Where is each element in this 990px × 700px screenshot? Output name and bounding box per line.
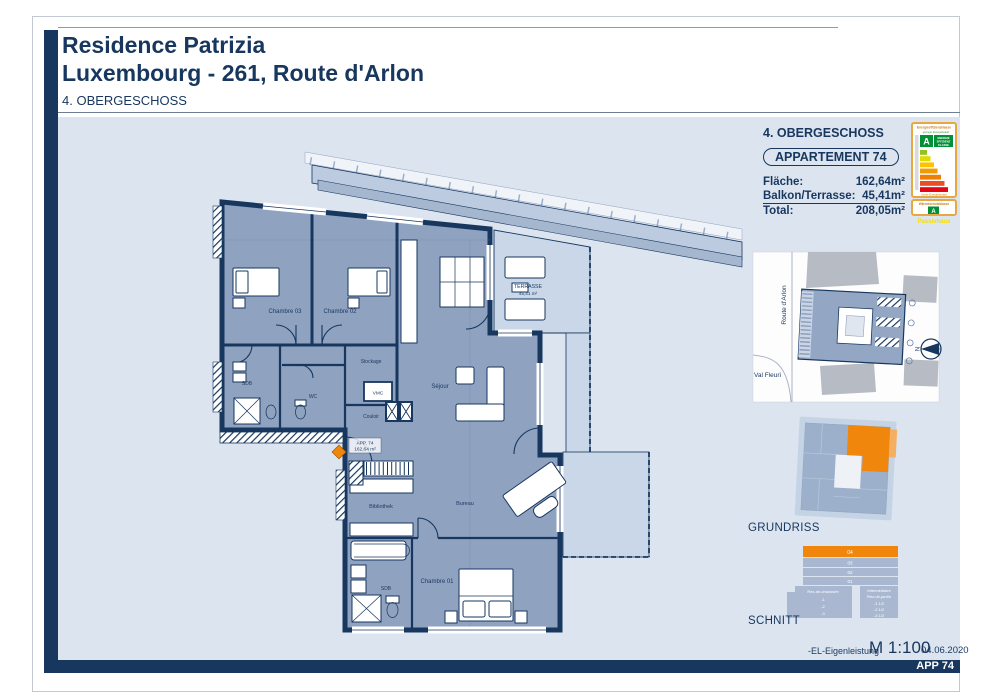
room-label-sdb1: SDB [242,381,253,387]
left-accent-bar [44,30,58,673]
entrance-label-line2: 162,64 m² [354,447,376,453]
apartment-badge: APPARTEMENT 74 [763,148,899,166]
schnitt-left-text: Rez-de-chaussée [807,589,839,594]
area-value: 162,64m² [856,175,905,189]
table-row: Total: 208,05m² [763,204,905,218]
schnitt-floor-text: 04 [847,550,853,556]
footer-date: 04.06.2020 [921,645,969,656]
grundriss-label: GRUNDRISS [748,522,820,534]
area-table: Fläche: 162,64m² Balkon/Terrasse: 45,41m… [763,175,905,218]
page-subtitle: 4. OBERGESCHOSS [62,93,187,108]
room-label-chambre01: Chambre 01 [420,579,454,585]
room-label-wc: WC [309,394,318,400]
energy-caption: ENERGIE [937,136,949,140]
room-label-vmc: VMC [373,391,384,397]
title-line2: Luxembourg - 261, Route d'Arlon [62,59,424,87]
elevator-shafts [386,402,412,421]
schnitt-floor-text: 02 [847,570,853,575]
energy-box1-title: Energieeffizienzklasse [917,126,951,130]
entrance-label-line1: APP. 74 [357,441,374,447]
plan-sheet: Residence Patrizia Luxembourg - 261, Rou… [0,0,990,700]
room-label-bibliothek: Bibliothek [369,504,393,510]
energy-caption: EFFIZIENZ [937,140,951,144]
energy-caption: KLASSE [938,143,949,147]
room-label-chambre03: Chambre 03 [268,309,302,315]
schnitt-label: SCHNITT [748,615,800,627]
table-row: Balkon/Terrasse: 45,41m² [763,189,905,204]
schnitt-right-text: Intermédiaire [867,588,891,593]
area-label: Balkon/Terrasse: [763,189,855,203]
table-row: Fläche: 162,64m² [763,175,905,189]
compass-letter: N [916,347,922,351]
terrace-area-label: 45,41 m² [519,291,538,296]
energy-box2-letter: A [931,209,936,215]
apartment-info-panel: 4. OBERGESCHOSS APPARTEMENT 74 Fläche: 1… [763,126,908,218]
footer-bar-label: APP 74 [916,660,954,672]
energy-low-label: geringer Energiebedarf [923,130,950,134]
street-label-val-fleuri: Val Fleuri [754,372,781,379]
schnitt-right-text: -2 1/2 [874,607,885,612]
room-label-chambre02: Chambre 02 [323,309,357,315]
grundriss-minimap [750,405,950,535]
schnitt-floor-text: 01 [847,579,853,584]
schnitt-diagram: 04 03 02 01 Rez-de-chaussée -1 -2 -3 Int… [750,540,950,625]
floor-plan-svg: APP. 74 162,64 m² Chambre 03 Chambre 02 … [60,115,760,665]
terrace-band [566,333,590,453]
balcony-area [563,452,649,557]
site-plan: Route d'Arlon Val Fleuri N [750,250,942,404]
area-value: 45,41m² [862,189,905,203]
area-label: Total: [763,204,793,218]
room-label-stockage: Stockage [361,359,382,365]
area-value: 208,05m² [856,204,905,218]
energy-box2-title: Wärmeschutzklasse [919,202,950,206]
energy-certificate: Energieeffizienzklasse geringer Energieb… [908,120,960,228]
site-main-building [798,289,916,365]
room-label-sdb2: SDB [381,586,392,592]
room-label-bureau: Bureau [456,501,474,507]
schnitt-right-text: Rez-de-jardin [867,594,891,599]
street-label-route-arlon: Route d'Arlon [781,285,788,325]
energy-high-label: hoher Energiebedarf [921,192,947,196]
header-rule-top [58,27,838,28]
sidebar-floor-label: 4. OBERGESCHOSS [763,126,908,140]
page-title: Residence Patrizia Luxembourg - 261, Rou… [62,31,424,87]
footer-bar: APP 74 [44,660,960,673]
terrace-label: TERRASSE [514,284,543,290]
header-rule-bottom [58,112,960,113]
room-label-sejour: Séjour [431,384,448,390]
title-line1: Residence Patrizia [62,31,424,59]
schnitt-right-text: -3 1/2 [874,613,885,618]
schnitt-floor-text: 03 [847,561,853,566]
area-label: Fläche: [763,175,803,189]
energy-footnote: Passivhaus [917,219,951,225]
room-label-couloir: Couloir [363,414,379,420]
energy-class-letter: A [923,137,930,147]
schnitt-right-text: -1 1/2 [874,601,885,606]
